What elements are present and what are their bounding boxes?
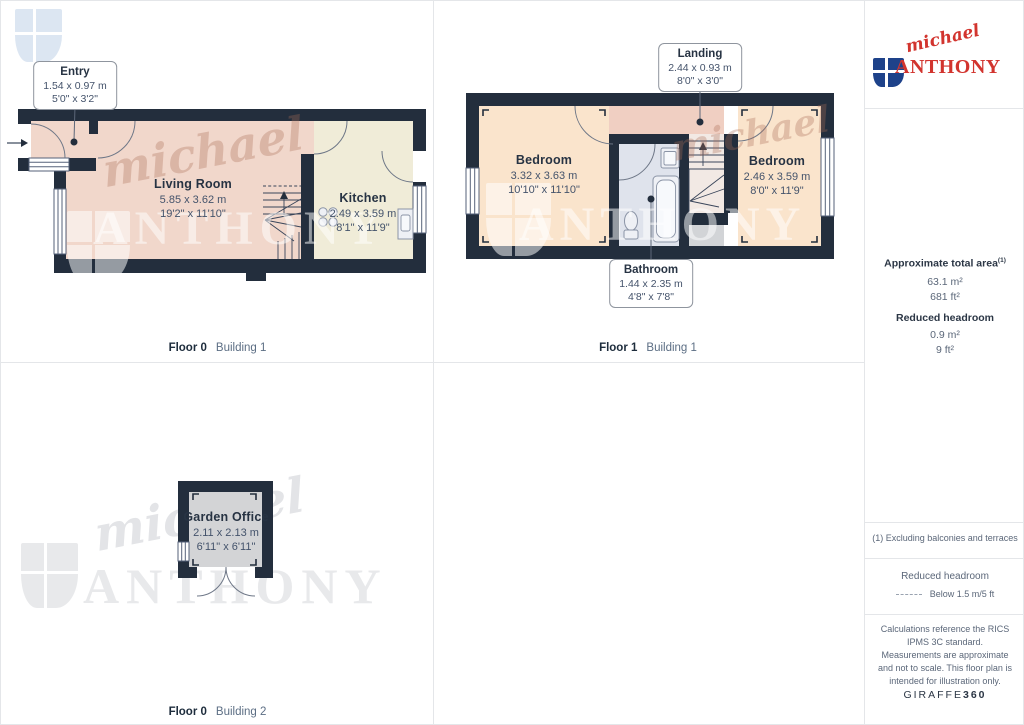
room-label-bedroom-left: Bedroom 3.32 x 3.63 m 10'10" x 11'10" (508, 153, 580, 196)
room-dim-metric: 2.11 x 2.13 m (183, 527, 268, 539)
entry-direction-arrow (7, 139, 28, 147)
callout-landing: Landing 2.44 x 0.93 m 8'0" x 3'0" (658, 43, 742, 92)
room-dim-metric: 2.49 x 3.59 m (330, 208, 397, 220)
disclaimer-text: Calculations reference the RICS IPMS 3C … (876, 623, 1014, 688)
callout-dim-imperial: 4'8" x 7'8" (619, 291, 683, 303)
brand-caps-text: ANTHONY (895, 56, 1001, 79)
room-label-bedroom-right: Bedroom 2.46 x 3.59 m 8'0" x 11'9" (744, 154, 811, 197)
area-footnote: (1) Excluding balconies and terraces (865, 533, 1024, 543)
callout-bathroom: Bathroom 1.44 x 2.35 m 4'8" x 7'8" (609, 259, 693, 308)
giraffe-360: 360 (963, 689, 987, 701)
room-dim-imperial: 6'11" x 6'11" (183, 541, 268, 553)
floor-label: Floor 0 (169, 706, 207, 718)
reduced-headroom-m2: 0.9 m² (865, 329, 1024, 341)
room-dim-metric: 5.85 x 3.62 m (154, 194, 232, 206)
total-area-ft2: 681 ft² (865, 291, 1024, 303)
giraffe-text: GIRAFFE (903, 689, 963, 701)
room-dim-imperial: 19'2" x 11'10" (154, 208, 232, 220)
plan-cell-floor0-building2: michael ANTHONY (1, 363, 434, 725)
room-name: Kitchen (330, 191, 397, 205)
room-label-garden-office: Garden Office 2.11 x 2.13 m 6'11" x 6'11… (183, 510, 268, 553)
plan-cell-floor1-building1: michael ANTHONY Landing 2.44 x 0.93 m 8'… (431, 1, 865, 363)
legend-row: Below 1.5 m/5 ft (865, 589, 1024, 599)
callout-dim-metric: 2.44 x 0.93 m (668, 62, 732, 74)
legend-item: Below 1.5 m/5 ft (930, 589, 995, 599)
total-area-title: Approximate total area(1) (865, 257, 1024, 270)
info-sidebar: michael ANTHONY Approximate total area(1… (865, 1, 1024, 725)
legend-title: Reduced headroom (865, 571, 1024, 582)
room-name: Bedroom (508, 153, 580, 167)
brand-script-text: michael (904, 21, 982, 57)
sidebar-divider (865, 522, 1024, 523)
callout-room-name: Bathroom (619, 264, 683, 276)
floor-footer: Floor 0Building 2 (1, 706, 434, 718)
sidebar-divider (865, 108, 1024, 109)
reduced-headroom-ft2: 9 ft² (865, 344, 1024, 356)
footnote-marker: (1) (998, 257, 1006, 264)
floor-footer: Floor 1Building 1 (431, 342, 865, 354)
callout-room-name: Entry (43, 66, 107, 78)
room-label-kitchen: Kitchen 2.49 x 3.59 m 8'1" x 11'9" (330, 191, 397, 234)
plan-cell-floor0-building1: michael ANTHONY Entry 1.54 x 0.97 m 5'0"… (1, 1, 434, 363)
floor-footer: Floor 0Building 1 (1, 342, 434, 354)
room-dim-metric: 2.46 x 3.59 m (744, 171, 811, 183)
dashed-line-icon (896, 594, 922, 595)
room-name: Living Room (154, 177, 232, 191)
room-dim-metric: 3.32 x 3.63 m (508, 170, 580, 182)
room-name: Bedroom (744, 154, 811, 168)
callout-dim-imperial: 8'0" x 3'0" (668, 75, 732, 87)
total-area-m2: 63.1 m² (865, 276, 1024, 288)
room-dim-imperial: 8'0" x 11'9" (744, 185, 811, 197)
door-arcs (197, 567, 255, 596)
floorplan-sheet: michael ANTHONY Entry 1.54 x 0.97 m 5'0"… (0, 0, 1024, 725)
sidebar-divider (865, 614, 1024, 615)
callout-entry: Entry 1.54 x 0.97 m 5'0" x 3'2" (33, 61, 117, 110)
reduced-headroom-title: Reduced headroom (865, 312, 1024, 324)
room-name: Garden Office (183, 510, 268, 524)
room-dim-imperial: 10'10" x 11'10" (508, 184, 580, 196)
building-label: Building 1 (646, 342, 697, 354)
giraffe360-brand: GIRAFFE360 (865, 689, 1024, 701)
callout-room-name: Landing (668, 48, 732, 60)
room-dim-imperial: 8'1" x 11'9" (330, 222, 397, 234)
sidebar-divider (865, 558, 1024, 559)
callout-dim-metric: 1.54 x 0.97 m (43, 80, 107, 92)
callout-dim-metric: 1.44 x 2.35 m (619, 278, 683, 290)
floor-label: Floor 1 (599, 342, 637, 354)
building-label: Building 2 (216, 706, 267, 718)
room-label-living-room: Living Room 5.85 x 3.62 m 19'2" x 11'10" (154, 177, 232, 220)
building-label: Building 1 (216, 342, 267, 354)
callout-dim-imperial: 5'0" x 3'2" (43, 93, 107, 105)
floor-label: Floor 0 (169, 342, 207, 354)
